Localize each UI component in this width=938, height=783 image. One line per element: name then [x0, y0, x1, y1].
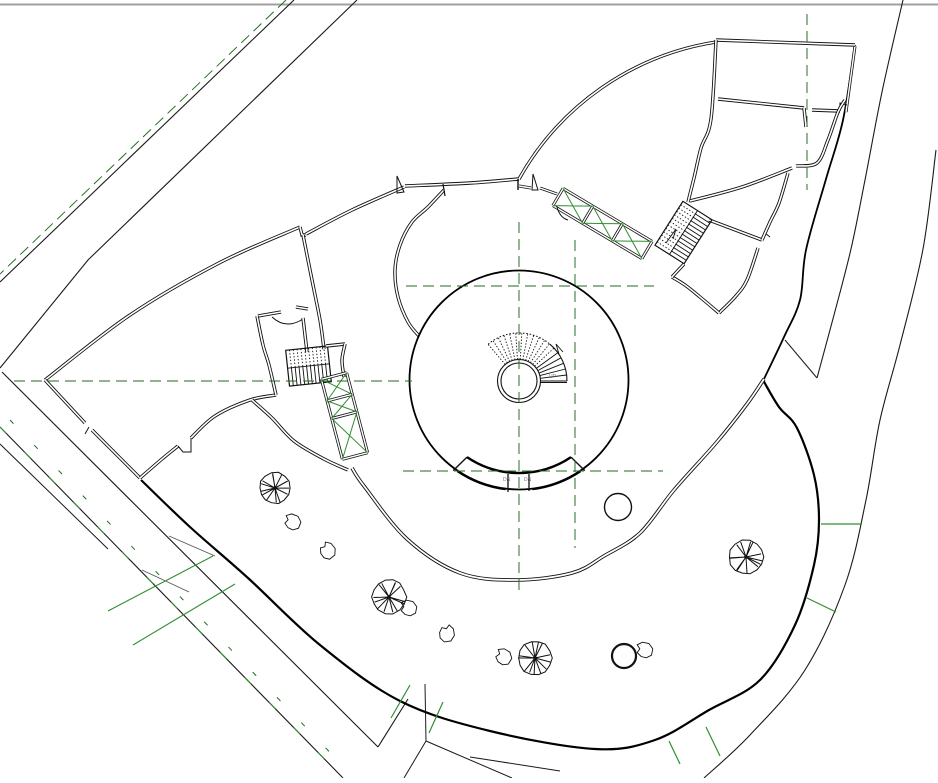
- svg-text:DN: DN: [503, 477, 511, 483]
- svg-text:DN: DN: [524, 477, 532, 483]
- svg-text:UP: UP: [549, 374, 557, 380]
